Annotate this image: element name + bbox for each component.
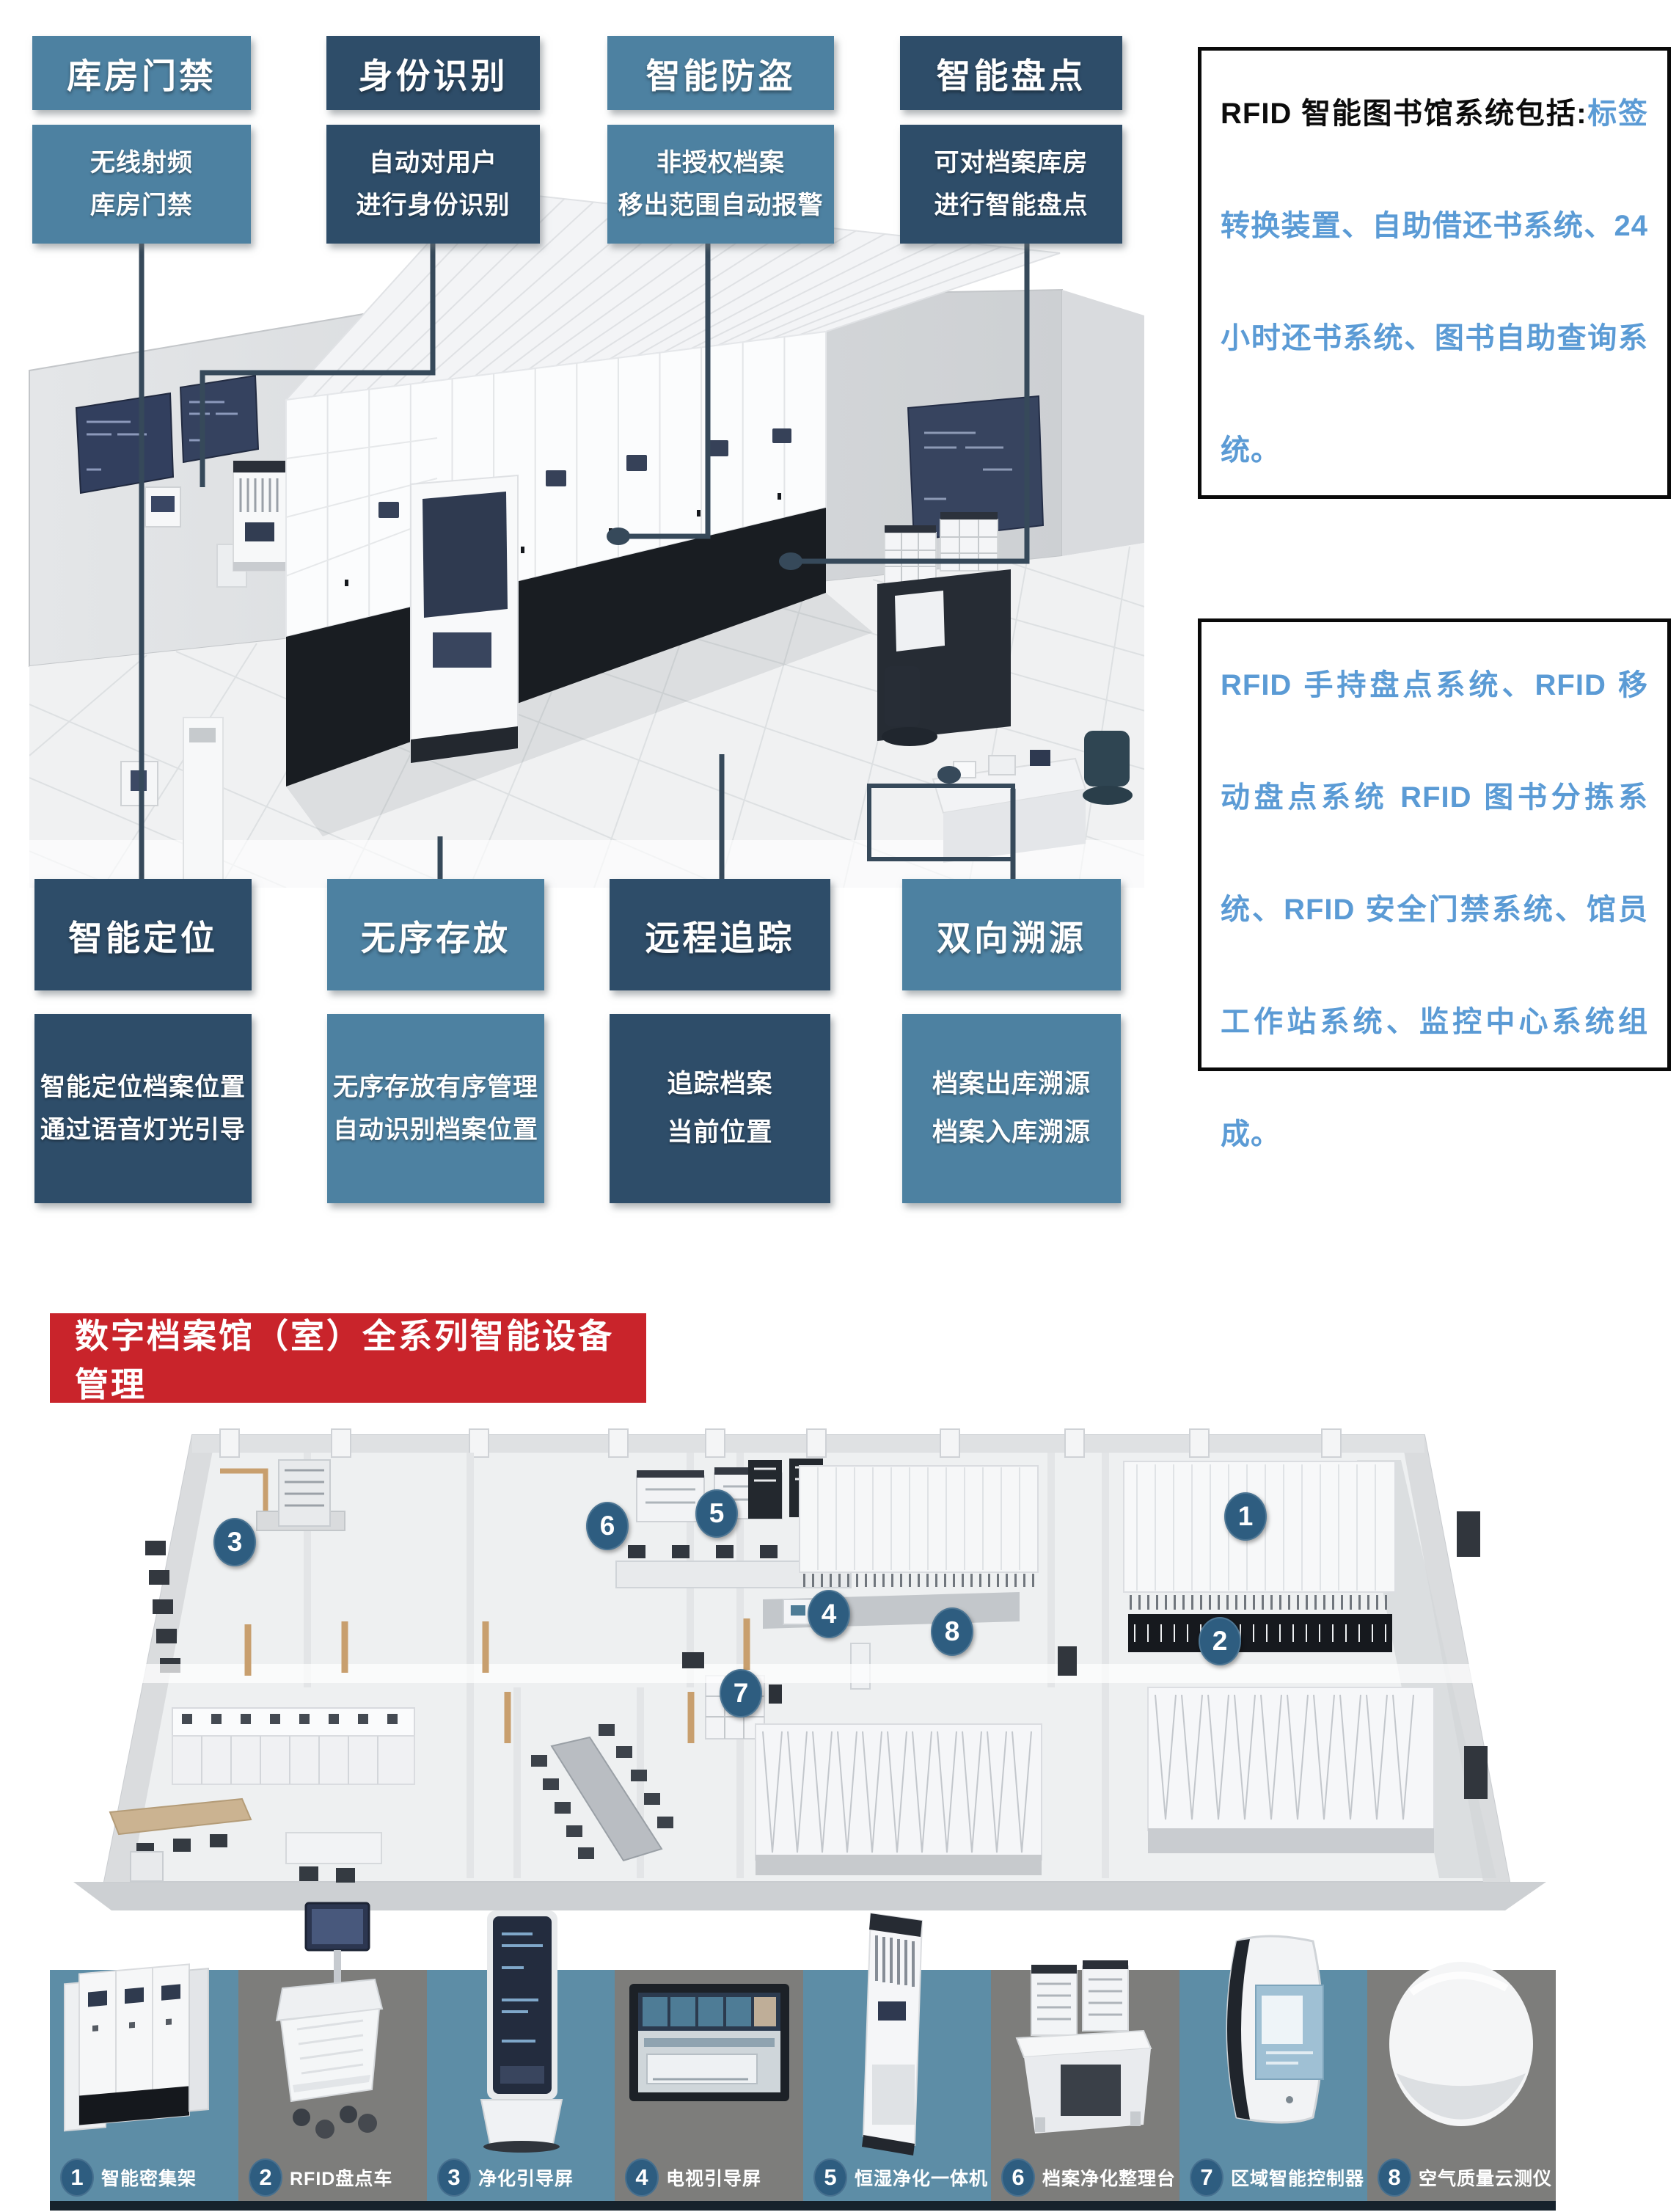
equipment-number-badge: 6 [1001, 2158, 1035, 2197]
equipment-name: 净化引导屏 [478, 2164, 574, 2191]
equipment-label-row: 3 净化引导屏 [427, 2158, 615, 2197]
equipment-number-badge: 2 [249, 2158, 282, 2197]
equipment-label-row: 7 区域智能控制器 [1179, 2158, 1368, 2197]
equipment-name: 电视引导屏 [666, 2164, 761, 2191]
floorplan-marker-2: 2 [1199, 1617, 1241, 1665]
equipment-name: 恒湿净化一体机 [855, 2164, 988, 2191]
humidity-purifier-product-image [803, 1897, 992, 2161]
floorplan-shelving-center-top [800, 1466, 1038, 1580]
equipment-number-badge: 5 [813, 2158, 847, 2197]
equipment-label-row: 8 空气质量云测仪 [1367, 2158, 1556, 2197]
smart-shelving-product-image [50, 1919, 238, 2161]
equipment-name: 区域智能控制器 [1231, 2164, 1364, 2191]
equipment-number: 7 [1200, 2164, 1212, 2191]
strip-bottom-border [50, 2201, 1556, 2211]
marker-number: 2 [1212, 1626, 1228, 1657]
floorplan-shelving-right-bottom [1148, 1687, 1434, 1853]
equipment-number: 4 [635, 2164, 648, 2191]
equipment-name: 空气质量云测仪 [1419, 2164, 1552, 2191]
equipment-name: RFID盘点车 [290, 2164, 392, 2191]
equipment-number: 3 [447, 2164, 460, 2191]
marker-number: 7 [734, 1678, 749, 1709]
floorplan-marker-5: 5 [695, 1489, 738, 1538]
equipment-number-badge: 8 [1378, 2158, 1411, 2197]
tv-guide-screen-product-image [615, 1897, 803, 2161]
equipment-label-row: 2 RFID盘点车 [238, 2158, 427, 2197]
equipment-tile-rfid-cart: 2 RFID盘点车 [238, 1970, 427, 2207]
equipment-number-badge: 3 [437, 2158, 471, 2197]
equipment-label-row: 4 电视引导屏 [615, 2158, 803, 2197]
equipment-tile-zone-controller: 7 区域智能控制器 [1179, 1970, 1368, 2207]
floorplan-marker-3: 3 [213, 1518, 256, 1566]
marker-number: 8 [945, 1616, 960, 1647]
floorplan-marker-6: 6 [586, 1502, 629, 1550]
floorplan-cabinets [172, 1708, 414, 1784]
floorplan-marker-7: 7 [720, 1669, 762, 1718]
equipment-number: 2 [259, 2164, 271, 2191]
equipment-number-badge: 1 [60, 2158, 94, 2197]
zone-controller-product-image [1179, 1897, 1368, 2161]
equipment-tile-purify-workbench: 6 档案净化整理台 [991, 1970, 1179, 2207]
equipment-number-badge: 4 [625, 2158, 659, 2197]
equipment-number-badge: 7 [1190, 2158, 1223, 2197]
equipment-tile-air-quality-sensor: 8 空气质量云测仪 [1367, 1970, 1556, 2207]
equipment-name: 档案净化整理台 [1042, 2164, 1176, 2191]
floorplan-marker-8: 8 [931, 1607, 973, 1656]
equipment-label-row: 5 恒湿净化一体机 [803, 2158, 992, 2197]
floorplan-shelving-center-bottom [756, 1724, 1042, 1875]
floorplan-marker-1: 1 [1224, 1492, 1267, 1541]
marker-number: 6 [600, 1511, 615, 1541]
equipment-tile-tv-guide-screen: 4 电视引导屏 [615, 1970, 803, 2207]
purify-guide-screen-product-image [427, 1897, 615, 2161]
marker-number: 1 [1238, 1501, 1254, 1532]
infographic-page: 库房门禁 无线射频库房门禁 身份识别 自动对用户进行身份识别 智能防盗 非授权档… [0, 0, 1679, 2212]
rfid-cart-product-image [238, 1897, 427, 2161]
marker-number: 3 [227, 1527, 243, 1558]
floorplan-shelving-right-top [1124, 1461, 1395, 1652]
marker-number: 4 [822, 1599, 837, 1629]
equipment-name: 智能密集架 [101, 2164, 197, 2191]
equipment-number: 5 [824, 2164, 836, 2191]
equipment-tile-humidity-purifier: 5 恒湿净化一体机 [803, 1970, 992, 2207]
floorplan-marker-4: 4 [808, 1590, 850, 1638]
purify-workbench-product-image [991, 1897, 1179, 2161]
floorplan-illustration [0, 0, 1679, 1937]
equipment-number: 6 [1012, 2164, 1024, 2191]
equipment-label-row: 1 智能密集架 [50, 2158, 238, 2197]
equipment-label-row: 6 档案净化整理台 [991, 2158, 1179, 2197]
air-quality-sensor-product-image [1367, 1897, 1556, 2161]
equipment-number: 8 [1388, 2164, 1400, 2191]
equipment-tile-purify-guide-screen: 3 净化引导屏 [427, 1970, 615, 2207]
marker-number: 5 [709, 1498, 725, 1529]
equipment-number: 1 [70, 2164, 83, 2191]
equipment-tile-smart-shelving: 1 智能密集架 [50, 1970, 238, 2207]
